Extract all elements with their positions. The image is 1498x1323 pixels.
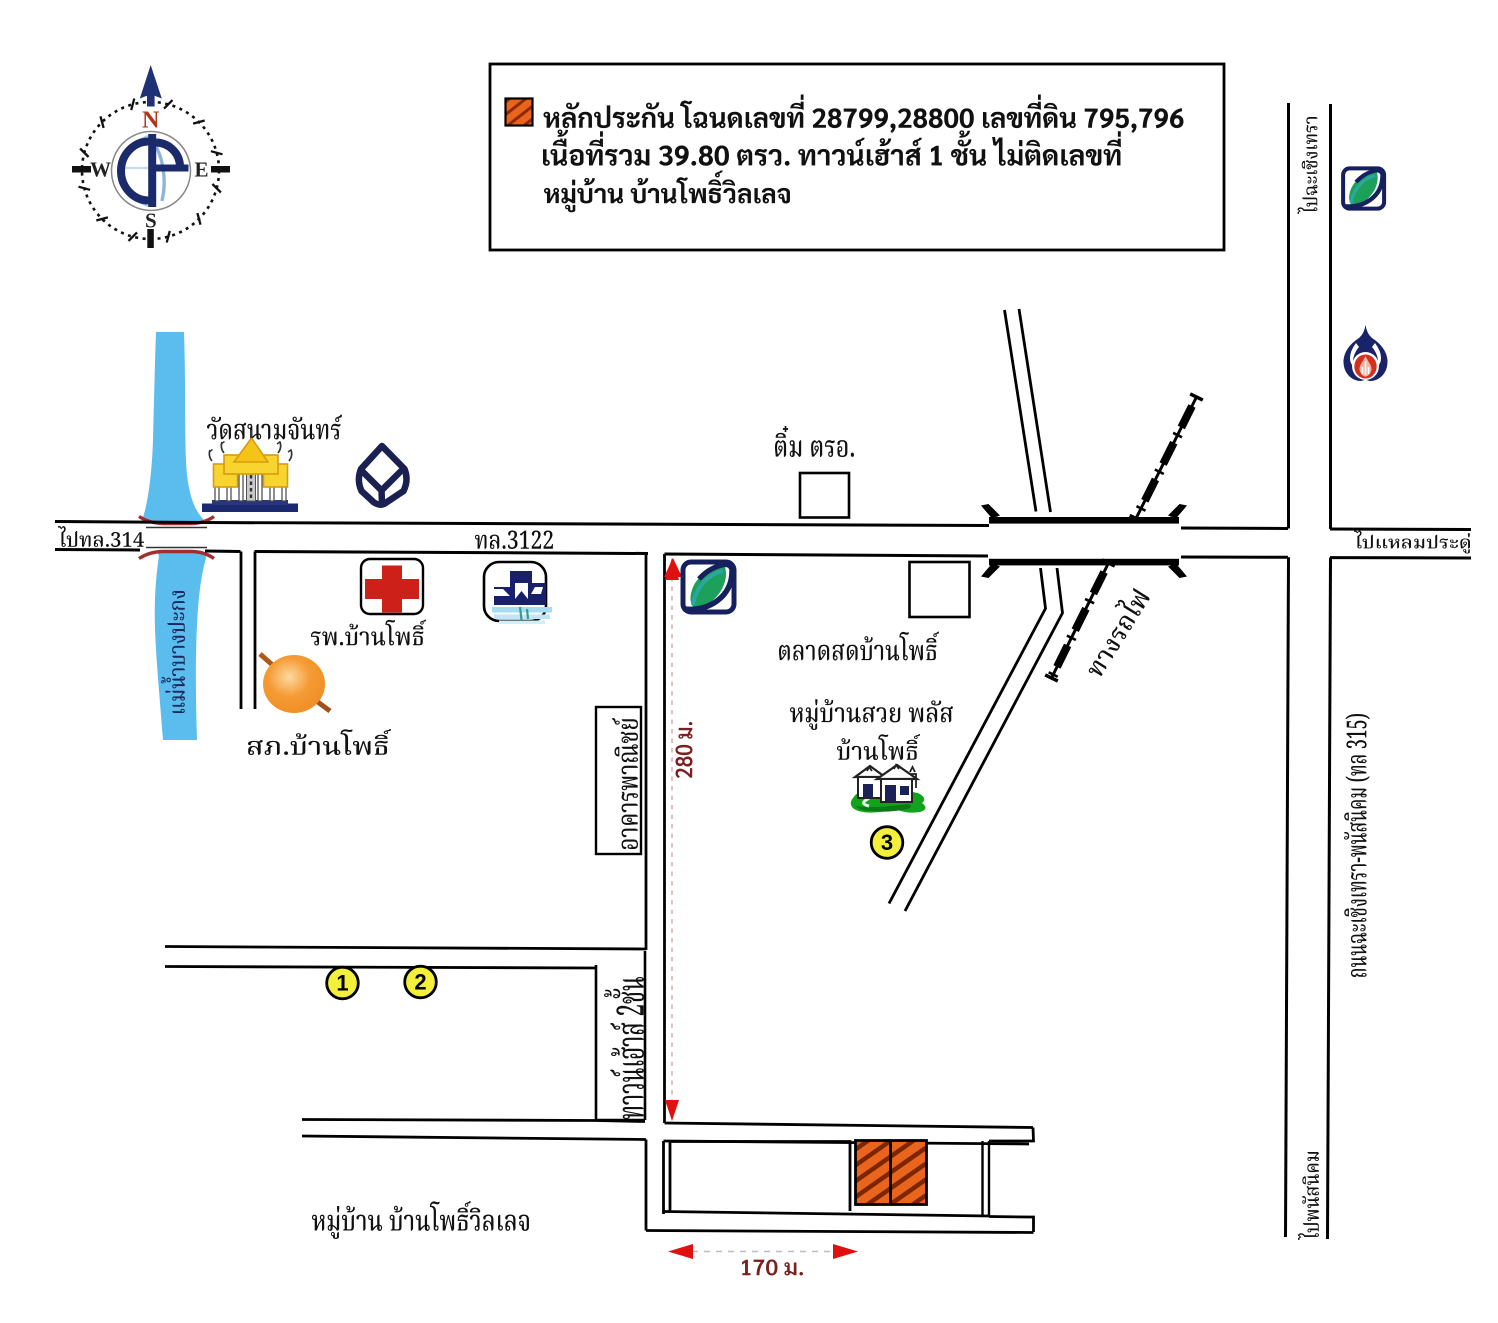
svg-text:3: 3	[881, 830, 893, 855]
svg-text:W: W	[90, 158, 111, 182]
svg-text:1: 1	[336, 971, 348, 996]
svg-text:E: E	[195, 158, 209, 182]
svg-text:N: N	[142, 108, 160, 134]
svg-text:2: 2	[414, 970, 426, 995]
svg-text:S: S	[145, 209, 157, 233]
